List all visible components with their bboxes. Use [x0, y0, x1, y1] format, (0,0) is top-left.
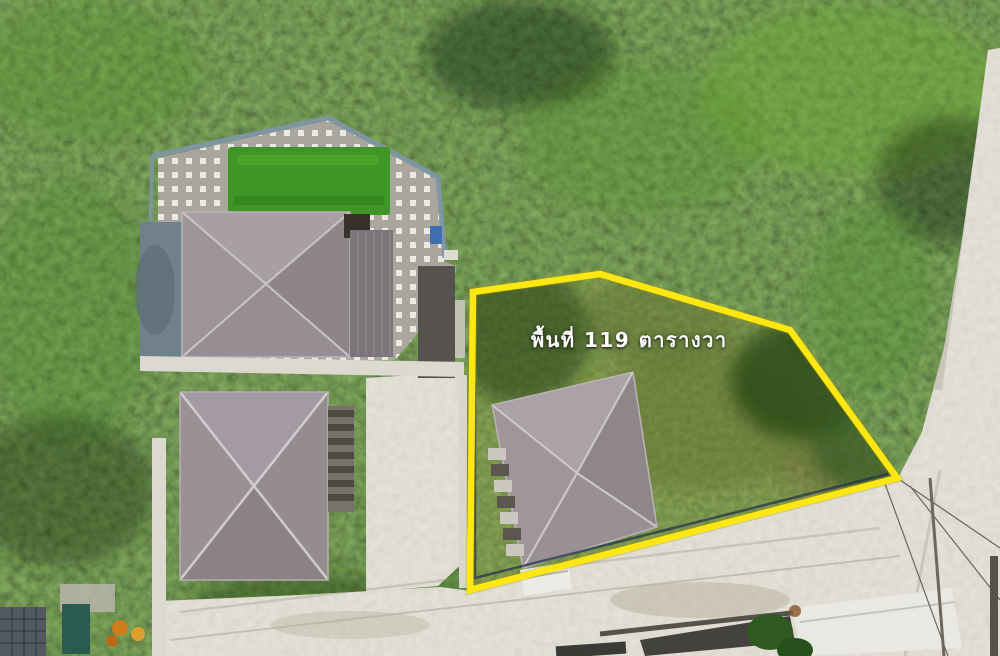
- aerial-photo-canvas: [0, 0, 1000, 656]
- aerial-photo: พื้นที่ 119 ตารางวา: [0, 0, 1000, 656]
- house1-left-annex-shade: [135, 245, 175, 335]
- house1-dark-annex-roof: [418, 266, 455, 378]
- turf-shade: [234, 196, 384, 205]
- area-annotation: พื้นที่ 119 ตารางวา: [531, 324, 791, 356]
- brown-spot: [789, 605, 801, 617]
- turf-highlight: [238, 155, 378, 165]
- utility-pole-2: [990, 556, 998, 656]
- white-object: [444, 250, 458, 260]
- shed-roof: [62, 604, 90, 654]
- compound-pillar: [455, 300, 465, 358]
- white-boundary-wall-mid: [459, 375, 467, 588]
- house1-right-annex-roof: [350, 230, 393, 357]
- house2-roof: [180, 392, 328, 580]
- house2-louvers: [328, 406, 354, 512]
- solar-panel-roof: [0, 607, 46, 656]
- blue-object: [430, 226, 442, 244]
- canopy-shadow: [425, 0, 615, 110]
- house1-roof: [182, 212, 370, 357]
- sunlit-canopy: [810, 205, 930, 395]
- white-boundary-wall-left: [152, 438, 166, 656]
